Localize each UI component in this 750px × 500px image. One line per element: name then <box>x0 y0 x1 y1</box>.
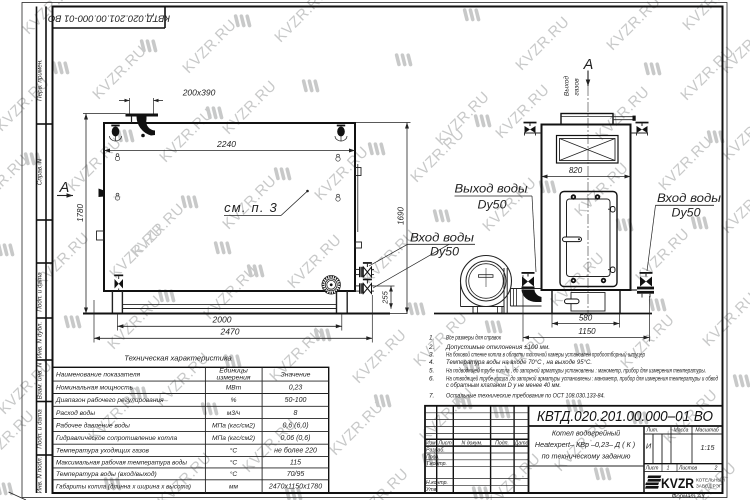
svg-text:2470х1150х1780: 2470х1150х1780 <box>268 484 322 491</box>
svg-text:Гидравлическое сопротивление к: Гидравлическое сопротивление котла <box>56 434 177 442</box>
svg-text:КВТД.020.201.00.000-01 ВО: КВТД.020.201.00.000-01 ВО <box>47 12 170 23</box>
svg-text:измерения: измерения <box>216 375 250 382</box>
svg-text:На боковой стенке котла в обла: На боковой стенке котла в области топочн… <box>446 350 645 358</box>
svg-text:1: 1 <box>667 466 670 472</box>
svg-text:KVZR: KVZR <box>661 476 694 491</box>
svg-text:Рабочее давление воды: Рабочее давление воды <box>56 421 130 429</box>
svg-text:газов: газов <box>574 78 581 96</box>
svg-text:Лист: Лист <box>437 441 452 447</box>
svg-text:Перв. примен.: Перв. примен. <box>37 59 44 101</box>
svg-text:Дата: Дата <box>514 441 529 447</box>
svg-text:Подп. и дата: Подп. и дата <box>36 272 44 312</box>
svg-text:580: 580 <box>579 314 593 323</box>
svg-text:И: И <box>646 442 652 451</box>
svg-text:%: % <box>231 397 237 404</box>
svg-text:см. п. 3: см. п. 3 <box>224 200 278 215</box>
svg-text:820: 820 <box>569 166 583 175</box>
svg-text:2470: 2470 <box>220 327 240 337</box>
svg-text:°С: °С <box>230 447 238 455</box>
svg-text:Вход воды: Вход воды <box>657 193 722 205</box>
svg-text:КВТД.020.201.00.000–01 ВО: КВТД.020.201.00.000–01 ВО <box>537 408 713 425</box>
svg-text:2: 2 <box>714 466 718 472</box>
svg-text:Масса: Масса <box>674 428 689 434</box>
svg-text:Значение: Значение <box>281 372 311 379</box>
svg-text:Масштаб: Масштаб <box>695 428 719 434</box>
svg-text:Справ. N: Справ. N <box>37 158 44 185</box>
svg-text:6.: 6. <box>429 376 434 383</box>
svg-text:N докум.: N докум. <box>462 441 483 447</box>
svg-text:Габариты котла (длинна х ширин: Габариты котла (длинна х ширина х высота… <box>56 483 191 491</box>
svg-text:Лит.: Лит. <box>646 428 659 434</box>
svg-text:Н.контр.: Н.контр. <box>426 480 448 486</box>
svg-text:Heatexpert– КВр –0,23– Д ( К ): Heatexpert– КВр –0,23– Д ( К ) <box>535 440 635 449</box>
svg-text:Котел водогрейный: Котел водогрейный <box>552 429 620 438</box>
svg-text:200х390: 200х390 <box>182 88 216 98</box>
svg-text:Лист: Лист <box>645 466 659 472</box>
svg-text:Разраб.: Разраб. <box>426 448 445 454</box>
svg-text:Dy50: Dy50 <box>672 208 702 220</box>
svg-text:МПа (кгс/см2): МПа (кгс/см2) <box>212 435 255 442</box>
svg-text:Dy50: Dy50 <box>478 200 508 212</box>
svg-text:0,06 (0,6): 0,06 (0,6) <box>281 435 311 442</box>
svg-text:МВт: МВт <box>226 385 242 392</box>
svg-text:8: 8 <box>294 410 298 417</box>
svg-text:Наименование показателя: Наименование показателя <box>56 372 141 379</box>
svg-text:115: 115 <box>290 460 301 467</box>
svg-text:Остальные технические требован: Остальные технические требования по ОСТ … <box>446 392 605 400</box>
svg-text:На подводящей трубе котла ,: На подводящей трубе котла , до запорной … <box>446 367 706 375</box>
svg-text:2.: 2. <box>428 344 434 351</box>
svg-text:МПа (кгс/см2): МПа (кгс/см2) <box>212 422 255 429</box>
svg-text:Вход воды: Вход воды <box>410 233 475 245</box>
svg-text:50-100: 50-100 <box>285 397 307 404</box>
svg-text:Подп. и дата: Подп. и дата <box>36 409 44 449</box>
svg-text:2240: 2240 <box>216 139 236 149</box>
svg-text:Т.контр.: Т.контр. <box>426 461 447 467</box>
svg-text:по техническому заданию: по техническому заданию <box>542 452 631 461</box>
svg-text:2000: 2000 <box>212 315 232 325</box>
svg-text:Температура уходящих газов: Температура уходящих газов <box>56 447 149 455</box>
svg-text:°С: °С <box>230 459 238 467</box>
svg-text:Выход воды: Выход воды <box>455 184 529 196</box>
svg-text:Взам. инв. N: Взам. инв. N <box>37 362 44 399</box>
svg-text:мм: мм <box>229 484 239 491</box>
svg-text:Единицы: Единицы <box>219 367 247 375</box>
svg-text:Допустимые отклонения ±100 мм: Допустимые отклонения ±100 мм. <box>445 344 550 351</box>
svg-text:Температура воды (вход/выход): Температура воды (вход/выход) <box>56 470 157 478</box>
svg-text:1780: 1780 <box>76 204 85 222</box>
svg-text:Пров.: Пров. <box>426 454 440 460</box>
svg-text:Техническая характеристика: Техническая характеристика <box>124 354 232 363</box>
svg-text:Расход воды: Расход воды <box>56 409 95 417</box>
svg-text:Подп.: Подп. <box>495 441 509 447</box>
svg-text:Формат А3: Формат А3 <box>672 494 705 500</box>
svg-text:Инв. N дубл.: Инв. N дубл. <box>36 322 44 358</box>
svg-text:Листов: Листов <box>678 466 698 472</box>
svg-text:1690: 1690 <box>397 207 406 225</box>
svg-text:0,6 (6,0): 0,6 (6,0) <box>282 422 308 429</box>
svg-text:ЗАВОД РЭП: ЗАВОД РЭП <box>696 484 722 489</box>
svg-text:70/95: 70/95 <box>287 471 305 478</box>
svg-text:°С: °С <box>230 470 238 478</box>
svg-text:Изм: Изм <box>426 441 436 447</box>
svg-text:м3/ч: м3/ч <box>227 410 241 417</box>
svg-text:Номинальная мощность: Номинальная мощность <box>56 385 134 392</box>
svg-text:5.: 5. <box>429 368 434 375</box>
svg-text:4.: 4. <box>429 359 434 366</box>
svg-text:1.: 1. <box>429 335 434 342</box>
svg-text:Все размеры для справок: Все размеры для справок <box>446 334 502 342</box>
svg-text:Инв. N подл.: Инв. N подл. <box>36 457 44 494</box>
svg-text:Диапазон рабочего регулировани: Диапазон рабочего регулирования <box>55 396 164 404</box>
svg-text:Выход: Выход <box>563 76 571 97</box>
svg-text:Утв.: Утв. <box>426 487 438 493</box>
svg-text:1150: 1150 <box>578 327 596 336</box>
svg-text:Максимальная рабочая температу: Максимальная рабочая температура воды <box>56 459 187 467</box>
svg-text:7.: 7. <box>429 393 434 400</box>
svg-text:Температура воды на входе 70°: Температура воды на входе 70°С , на выхо… <box>446 358 592 366</box>
svg-text:КОТЕЛЬНЫЙ: КОТЕЛЬНЫЙ <box>696 476 725 483</box>
svg-text:3.: 3. <box>429 351 434 358</box>
svg-text:с обратным клапаном D у не ме: с обратным клапаном D у не менее 40 мм. <box>446 381 561 389</box>
svg-text:не более 220: не более 220 <box>274 447 317 455</box>
svg-text:1:15: 1:15 <box>701 443 716 452</box>
svg-text:А: А <box>59 180 70 196</box>
svg-text:0,23: 0,23 <box>289 385 303 392</box>
svg-text:255: 255 <box>381 290 390 304</box>
